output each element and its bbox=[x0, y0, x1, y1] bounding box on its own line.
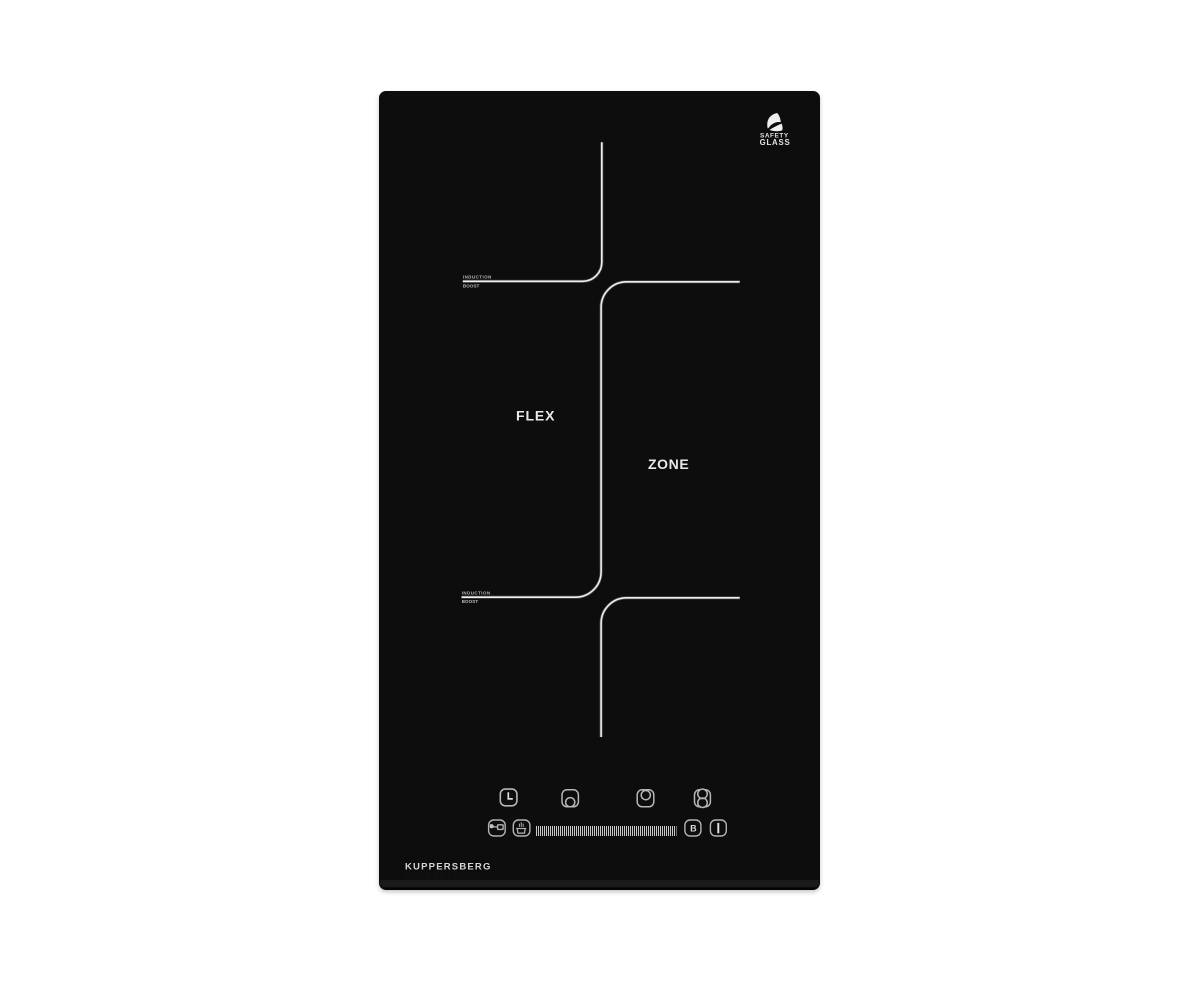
svg-text:BOOST: BOOST bbox=[463, 283, 480, 288]
svg-text:BOOST: BOOST bbox=[462, 599, 479, 604]
svg-text:B: B bbox=[690, 823, 697, 833]
svg-text:INDUCTION: INDUCTION bbox=[462, 591, 491, 596]
svg-text:KUPPERSBERG: KUPPERSBERG bbox=[406, 872, 482, 881]
svg-text:ZONE: ZONE bbox=[648, 456, 689, 472]
svg-text:INDUCTION: INDUCTION bbox=[463, 275, 492, 280]
svg-text:GLASS: GLASS bbox=[760, 138, 791, 147]
svg-text:FLEX: FLEX bbox=[516, 408, 555, 424]
